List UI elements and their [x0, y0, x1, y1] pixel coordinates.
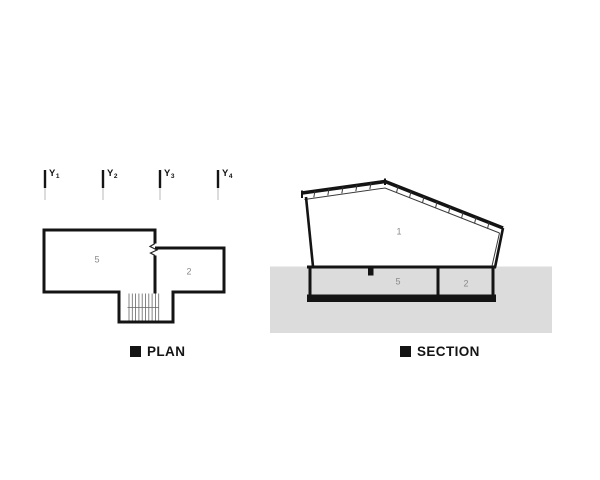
plan-caption: PLAN — [130, 345, 185, 358]
plan-caption-square-icon — [130, 346, 141, 357]
basement-base-slab — [307, 295, 496, 303]
plan-linework — [43, 229, 226, 324]
section-room1-number: 1 — [396, 228, 401, 237]
section-caption: SECTION — [400, 345, 480, 358]
grid-label-y2: Y2 — [107, 169, 117, 180]
grid-label-y1: Y1 — [49, 169, 59, 180]
grid-ticks — [45, 170, 218, 200]
grid-label-y4: Y4 — [222, 169, 232, 180]
stair-treads — [128, 294, 160, 321]
plan-room5-number: 5 — [94, 256, 99, 265]
section-roof-outer — [302, 182, 503, 229]
grid-label-y3: Y3 — [164, 169, 174, 180]
floor-wall-stub — [368, 269, 374, 276]
section-caption-square-icon — [400, 346, 411, 357]
plan-caption-label: PLAN — [147, 345, 185, 358]
architectural-drawing-page: Y1 Y2 Y3 Y4 5 2 1 5 2 PLAN SECTION — [0, 0, 600, 480]
section-room5-number: 5 — [395, 278, 400, 287]
plan-room2-number: 2 — [186, 268, 191, 277]
section-room2-number: 2 — [463, 280, 468, 289]
section-left-wall — [306, 197, 313, 267]
section-caption-label: SECTION — [417, 345, 480, 358]
section-roof-inner — [305, 188, 500, 233]
grid-tick-extensions — [45, 188, 218, 200]
drawing-linework — [0, 0, 600, 480]
